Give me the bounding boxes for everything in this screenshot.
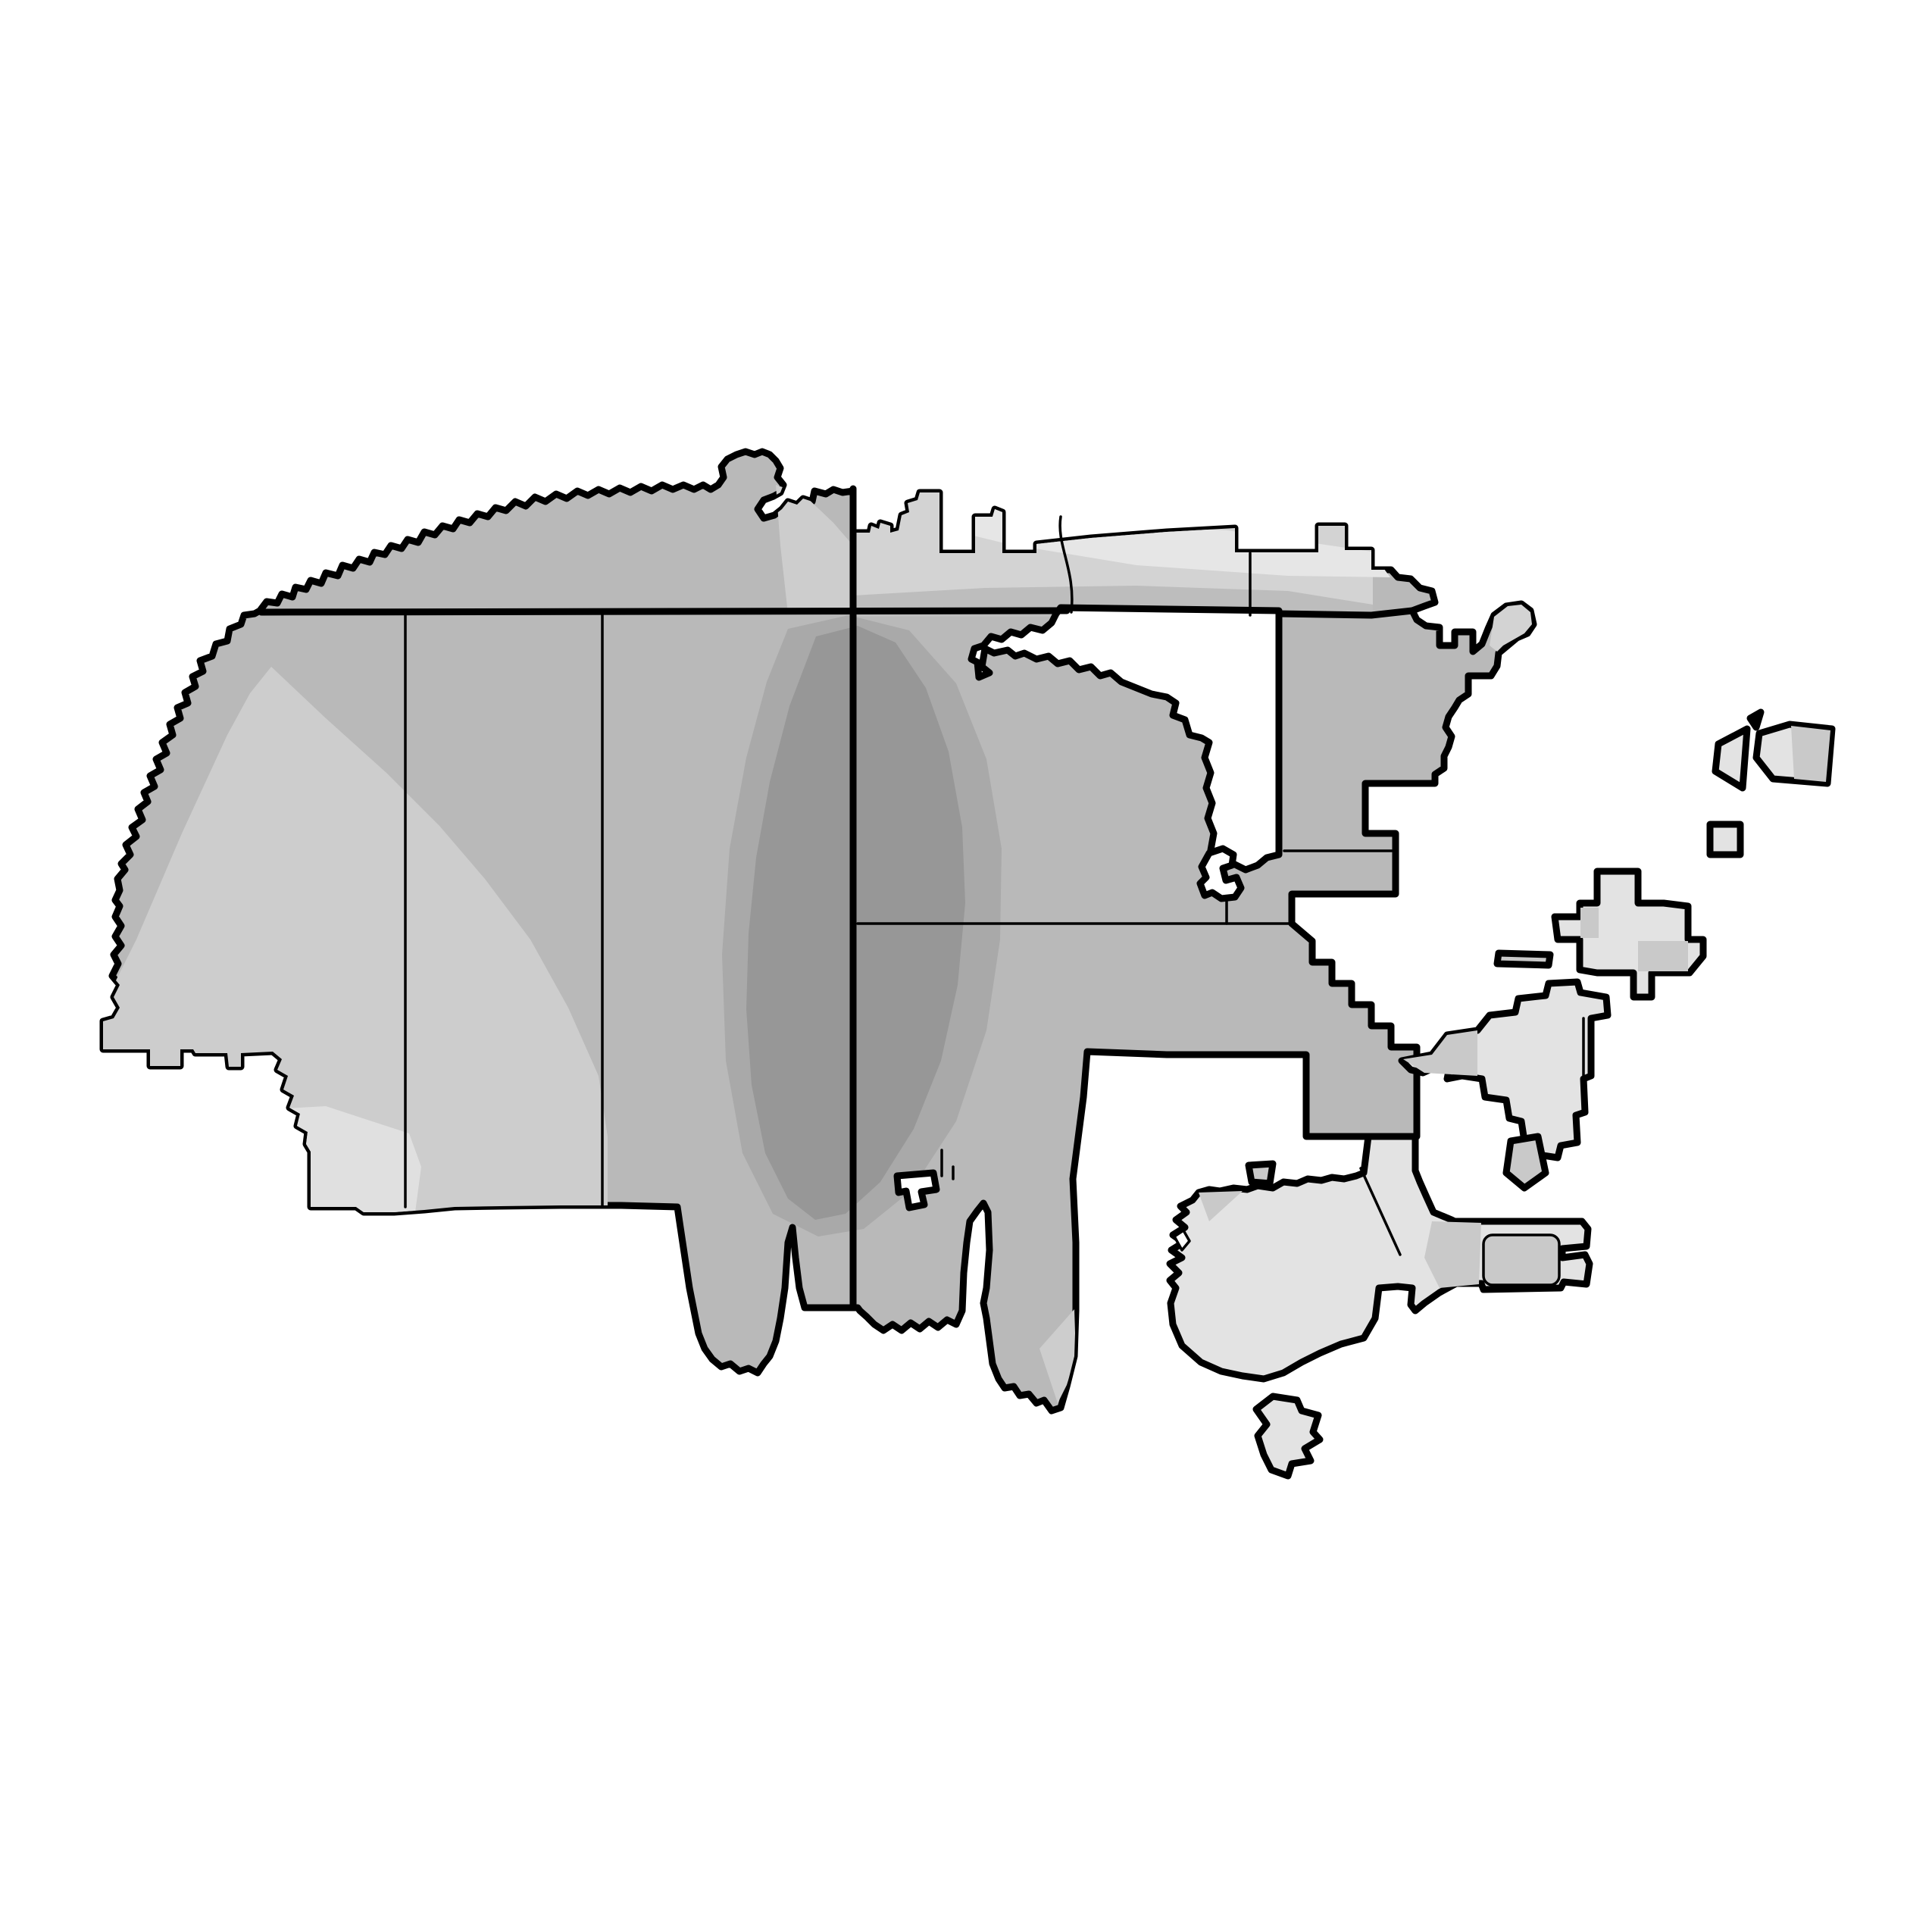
municipal-line-horizontal [261,611,1067,612]
exclave-small-pentagon [1506,1136,1546,1188]
exclave-cross-shade-2 [1580,908,1599,938]
south-cluster-rounded-rect [1483,1235,1559,1285]
exclave-cross-shade-1 [1638,941,1688,971]
south-cluster-flag [1249,1164,1273,1183]
exclave-small-bar [1497,953,1550,965]
exclave-northeast-parallelogram-shade [1791,726,1830,782]
exclave-small-square [1710,824,1740,855]
exclave-northeast-dash [1750,712,1761,727]
map-canvas [0,0,1932,1932]
